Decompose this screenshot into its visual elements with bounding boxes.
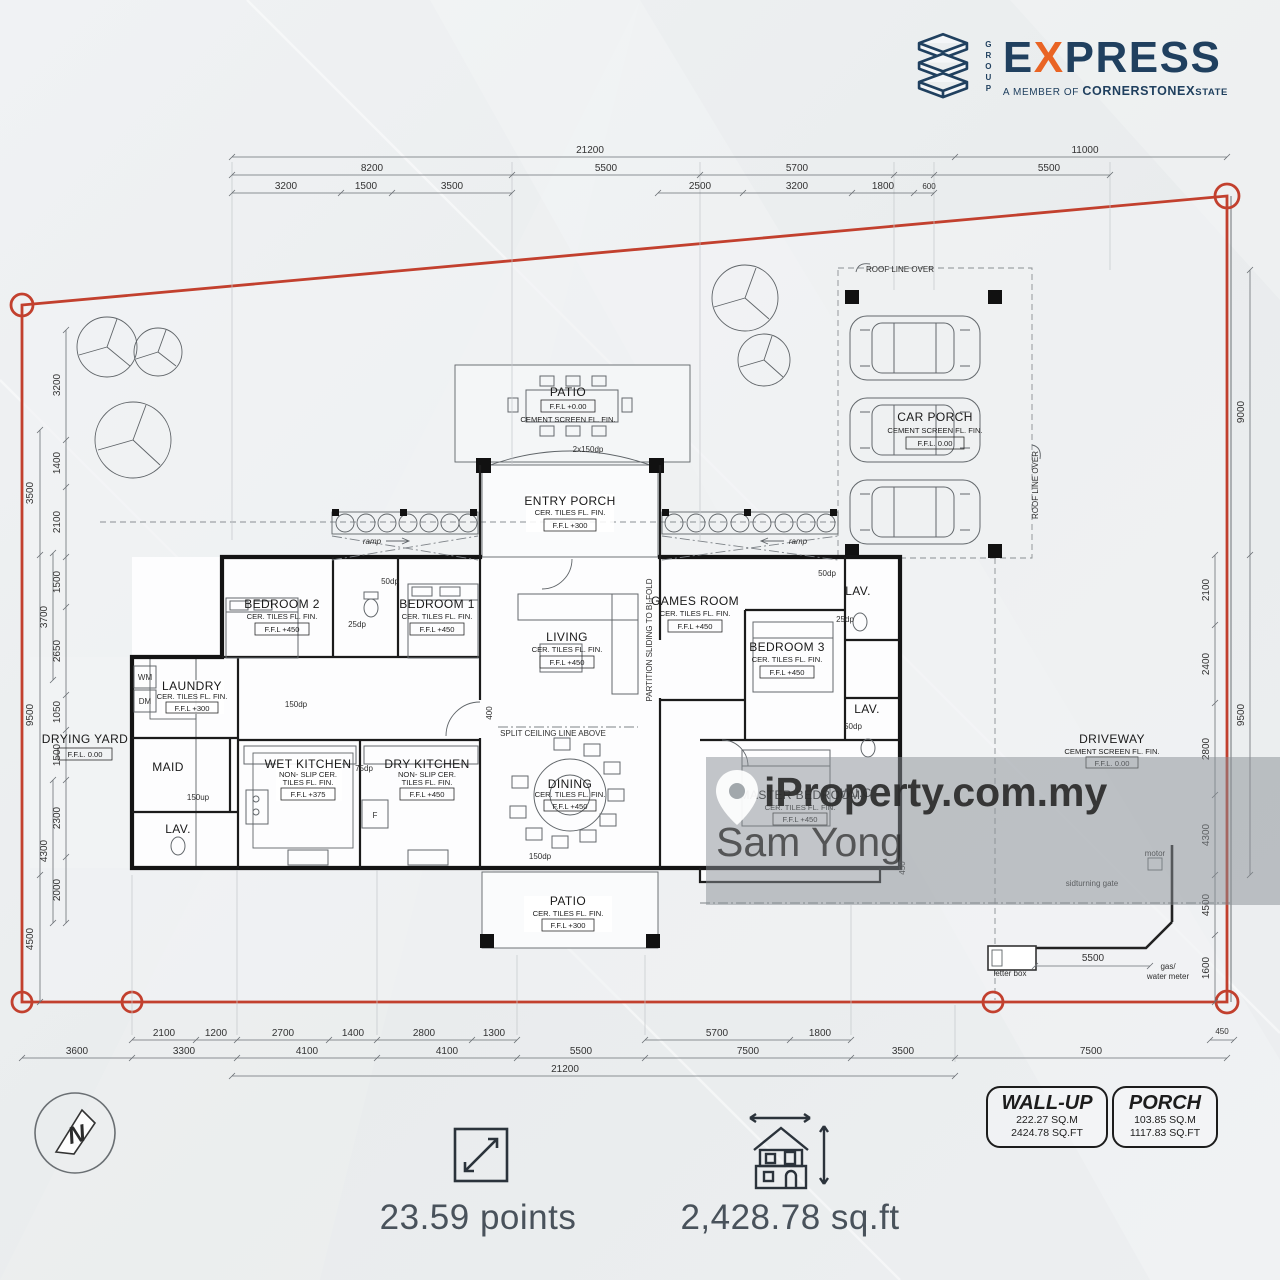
room-ffl: F.F.L +375 xyxy=(291,790,326,799)
dim-label: 5500 xyxy=(1082,953,1105,964)
room-label: LAV. xyxy=(845,584,871,598)
dim-label: 5500 xyxy=(595,163,618,174)
logo-brand: EXPRESS xyxy=(1003,36,1228,80)
room-finish: CER. TILES FL. FIN. xyxy=(402,612,473,621)
logo-xstate-state: STATE xyxy=(1195,87,1228,98)
page: 21200 11000 8200 5500 5700 5500 3200 150… xyxy=(0,0,1280,1280)
dim-label: 2000 xyxy=(52,878,63,901)
note-label: 50dp xyxy=(844,722,862,731)
dim-label: 1200 xyxy=(205,1028,228,1039)
note-label: 75dp xyxy=(355,764,373,773)
dim-label: 1500 xyxy=(52,743,63,766)
room-finish: CER. TILES FL. FIN. xyxy=(660,609,731,618)
room-label: CAR PORCH xyxy=(897,410,973,424)
room-label: LIVING xyxy=(546,630,588,644)
note-label: 50dp xyxy=(381,577,399,586)
room-ffl: F.F.L +450 xyxy=(678,622,713,631)
dim-label: 11000 xyxy=(1071,145,1099,156)
note-label: 25dp xyxy=(836,615,854,624)
dim-label: 9500 xyxy=(1236,703,1247,726)
porch-title: PORCH xyxy=(1114,1092,1216,1114)
room-ffl: F.F.L. 0.00 xyxy=(917,439,952,448)
dim-label: 7500 xyxy=(1080,1046,1103,1057)
room-label: BEDROOM 3 xyxy=(749,640,825,654)
room-ffl: F.F.L +300 xyxy=(553,521,588,530)
gas-label: gas/ xyxy=(1160,962,1176,971)
dim-label: 2500 xyxy=(689,181,712,192)
note-label: 150dp xyxy=(285,700,308,709)
dim-label: 1600 xyxy=(1201,956,1212,979)
dim-label: 4500 xyxy=(25,927,36,950)
dim-label: 9000 xyxy=(1236,400,1247,423)
room-label: DRY KITCHEN xyxy=(384,757,469,771)
note-label: 25dp xyxy=(348,620,366,629)
logo-xstate-x: X xyxy=(1186,83,1195,98)
dim-label: 2650 xyxy=(52,639,63,662)
washer-label: WM xyxy=(138,673,153,682)
porch-sqft: 1117.83 SQ.FT xyxy=(1114,1127,1216,1140)
ramp-label: ramp xyxy=(789,537,808,546)
room-ffl: F.F.L +300 xyxy=(551,921,586,930)
room-finish: CEMENT SCREEN FL. FIN. xyxy=(520,415,615,424)
dryer-label: DM xyxy=(139,697,152,706)
dim-label: 2700 xyxy=(272,1028,295,1039)
room-finish: CER. TILES FL. FIN. xyxy=(157,692,228,701)
room-label: PATIO xyxy=(550,894,586,908)
ramp-label: ramp xyxy=(363,537,382,546)
logo-brand-e: E xyxy=(1003,33,1034,82)
dim-label: 1800 xyxy=(809,1028,832,1039)
note-label: 150dp xyxy=(529,852,552,861)
dim-label: 2800 xyxy=(1201,737,1212,760)
note-label: 2x150dp xyxy=(573,445,604,454)
room-finish: CER. TILES FL. FIN. xyxy=(533,909,604,918)
note-label: 50dp xyxy=(818,569,836,578)
dim-label: 3200 xyxy=(52,373,63,396)
room-label: LAV. xyxy=(165,822,191,836)
watermark-brand: iProperty.com.my xyxy=(764,769,1107,815)
stacked-boxes-icon xyxy=(912,28,974,106)
water-meter-label: water meter xyxy=(1146,972,1190,981)
room-ffl: F.F.L +450 xyxy=(553,802,588,811)
wall-up-title: WALL-UP xyxy=(988,1092,1106,1114)
room-finish: CER. TILES FL. FIN. xyxy=(532,645,603,654)
dim-label: 4100 xyxy=(436,1046,459,1057)
dim-label: 2800 xyxy=(413,1028,436,1039)
dim-label: 1050 xyxy=(52,700,63,723)
room-finish: CEMENT SCREEN FL. FIN. xyxy=(887,426,982,435)
dim-label: 5500 xyxy=(1038,163,1061,174)
dim-label: 8200 xyxy=(361,163,384,174)
dim-label: 4100 xyxy=(296,1046,319,1057)
room-ffl: F.F.L +0.00 xyxy=(549,402,586,411)
room-ffl: F.F.L +450 xyxy=(770,668,805,677)
room-label: PATIO xyxy=(550,385,586,399)
points-value: 23.59 points xyxy=(338,1198,618,1238)
dim-label: 450 xyxy=(1215,1027,1229,1036)
letterbox-label: letter box xyxy=(994,969,1027,978)
dim-label: 600 xyxy=(922,182,936,191)
roof-line-label: ROOF LINE OVER xyxy=(866,265,934,274)
note-label: 150up xyxy=(187,793,210,802)
dim-label: 5700 xyxy=(786,163,809,174)
dim-label: 3200 xyxy=(786,181,809,192)
room-finish: CEMENT SCREEN FL. FIN. xyxy=(1064,747,1159,756)
dim-label: 21200 xyxy=(576,145,604,156)
partition-label: PARTITION SLIDING TO BI-FOLD xyxy=(645,578,654,701)
dimension-icon xyxy=(452,1126,510,1189)
dim-label: 4300 xyxy=(39,839,50,862)
dim-label: 5700 xyxy=(706,1028,729,1039)
room-label: ENTRY PORCH xyxy=(524,494,615,508)
dim-label: 3200 xyxy=(275,181,298,192)
fridge-label: F xyxy=(373,811,378,820)
room-ffl: F.F.L +450 xyxy=(410,790,445,799)
dim-label: 1500 xyxy=(355,181,378,192)
dim-label: 2400 xyxy=(1201,652,1212,675)
logo-brand-press: PRESS xyxy=(1065,33,1222,82)
logo-tagline: A MEMBER OF CORNERSTONEXSTATE xyxy=(1003,83,1228,98)
dim-label: 2100 xyxy=(1201,578,1212,601)
dim-label: 2100 xyxy=(52,510,63,533)
dim-label: 2300 xyxy=(52,806,63,829)
room-finish: CER. TILES FL. FIN. xyxy=(247,612,318,621)
dim-label: 1300 xyxy=(483,1028,506,1039)
room-finish: CER. TILES FL. FIN. xyxy=(752,655,823,664)
room-finish: TILES FL. FIN. xyxy=(402,778,453,787)
dim-label: 1400 xyxy=(342,1028,365,1039)
dim-label: 3300 xyxy=(173,1046,196,1057)
dim-label: 5500 xyxy=(570,1046,593,1057)
express-logo: GROUP EXPRESS A MEMBER OF CORNERSTONEXST… xyxy=(912,28,1228,106)
dim-label: 21200 xyxy=(551,1064,579,1075)
split-ceiling-label: SPLIT CEILING LINE ABOVE xyxy=(500,729,606,738)
dim-label: 3700 xyxy=(39,605,50,628)
dim-label: 3500 xyxy=(25,481,36,504)
room-label: MAID xyxy=(152,760,184,774)
room-label: BEDROOM 1 xyxy=(399,597,475,611)
room-label: LAUNDRY xyxy=(162,679,222,693)
roof-line-label: ROOF LINE OVER xyxy=(1031,451,1040,519)
dim-label: 2100 xyxy=(153,1028,176,1039)
room-ffl: F.F.L +450 xyxy=(265,625,300,634)
room-ffl: F.F.L +300 xyxy=(175,704,210,713)
dim-label: 3600 xyxy=(66,1046,89,1057)
room-label: LAV. xyxy=(854,702,880,716)
dim-label: 3500 xyxy=(892,1046,915,1057)
room-finish: CER. TILES FL. FIN. xyxy=(535,790,606,799)
porch-sqm: 103.85 SQ.M xyxy=(1114,1114,1216,1127)
dim-label: 1800 xyxy=(872,181,895,192)
room-label: WET KITCHEN xyxy=(265,757,352,771)
logo-brand-x: X xyxy=(1034,33,1065,82)
room-finish: CER. TILES FL. FIN. xyxy=(535,508,606,517)
logo-member-of: A MEMBER OF xyxy=(1003,87,1079,98)
area-value: 2,428.78 sq.ft xyxy=(640,1198,940,1238)
room-finish: TILES FL. FIN. xyxy=(283,778,334,787)
room-ffl: F.F.L +450 xyxy=(420,625,455,634)
room-label: DRIVEWAY xyxy=(1079,732,1145,746)
logo-group-text: GROUP xyxy=(984,40,993,95)
house-area-icon xyxy=(744,1112,832,1201)
room-label: DRYING YARD xyxy=(42,732,128,746)
note-label: 400 xyxy=(485,706,494,720)
dim-label: 3500 xyxy=(441,181,464,192)
room-label: GAMES ROOM xyxy=(651,594,739,608)
wall-up-box: WALL-UP 222.27 SQ.M 2424.78 SQ.FT xyxy=(986,1086,1108,1148)
room-ffl: F.F.L +450 xyxy=(550,658,585,667)
wall-up-sqft: 2424.78 SQ.FT xyxy=(988,1127,1106,1140)
room-label: DINING xyxy=(548,777,592,791)
wall-up-sqm: 222.27 SQ.M xyxy=(988,1114,1106,1127)
watermark-agent: Sam Yong xyxy=(716,819,903,865)
dim-label: 1400 xyxy=(52,451,63,474)
dim-label: 7500 xyxy=(737,1046,760,1057)
logo-cornerstone: CORNERSTONE xyxy=(1082,84,1186,98)
dim-label: 9500 xyxy=(25,703,36,726)
room-ffl: F.F.L. 0.00 xyxy=(67,750,102,759)
dim-label: 1500 xyxy=(52,570,63,593)
watermark: iProperty.com.my Sam Yong xyxy=(706,757,1280,905)
porch-box: PORCH 103.85 SQ.M 1117.83 SQ.FT xyxy=(1112,1086,1218,1148)
room-label: BEDROOM 2 xyxy=(244,597,320,611)
